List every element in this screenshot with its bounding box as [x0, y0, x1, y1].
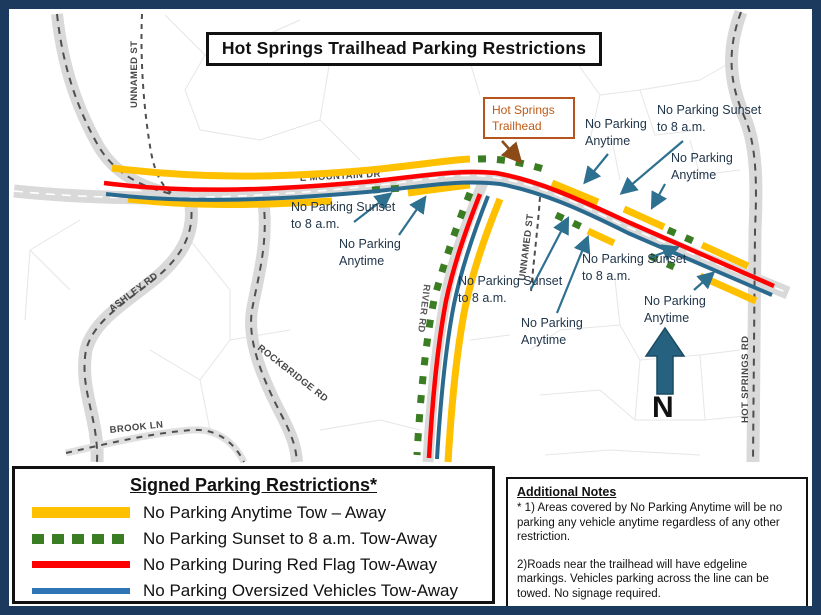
street-label-unnamed-st-left: UNNAMED ST — [129, 41, 140, 108]
legend-label: No Parking Anytime Tow – Away — [143, 503, 386, 523]
legend-swatch-blue — [32, 588, 130, 594]
street-label-hot-springs-rd: HOT SPRINGS RD — [740, 336, 751, 423]
legend-item-anytime: No Parking Anytime Tow – Away — [32, 501, 492, 524]
legend-item-red-flag: No Parking During Red Flag Tow-Away — [32, 553, 492, 576]
legend-item-sunset: No Parking Sunset to 8 a.m. Tow-Away — [32, 527, 492, 550]
annotation-sunset-4: No Parking Sunset to 8 a.m. — [582, 251, 697, 284]
notes-paragraph-2: 2)Roads near the trailhead will have edg… — [517, 558, 797, 602]
legend-swatch-red — [32, 561, 130, 568]
map-document: E MOUNTAIN DR UNNAMED ST UNNAMED ST ASHL… — [0, 0, 821, 615]
annotation-no-parking-anytime-1: No Parking Anytime — [585, 116, 667, 149]
annotation-arrow-3 — [653, 184, 665, 206]
notes-paragraph-1: * 1) Areas covered by No Parking Anytime… — [517, 501, 797, 545]
legend-label: No Parking During Red Flag Tow-Away — [143, 555, 437, 575]
annotation-sunset-3: No Parking Sunset to 8 a.m. — [458, 273, 570, 306]
legend-swatch-green-dashed — [32, 534, 130, 544]
notes-title: Additional Notes — [517, 485, 797, 499]
title-box: Hot Springs Trailhead Parking Restrictio… — [206, 32, 602, 66]
road-river-rd — [428, 180, 484, 462]
annotation-no-parking-anytime-5: No Parking Anytime — [644, 293, 726, 326]
north-label: N — [652, 391, 674, 425]
legend-label: No Parking Oversized Vehicles Tow-Away — [143, 581, 458, 601]
legend-label: No Parking Sunset to 8 a.m. Tow-Away — [143, 529, 437, 549]
annotation-arrow-1 — [586, 154, 608, 181]
annotation-no-parking-anytime-2: No Parking Anytime — [671, 150, 753, 183]
legend-title: Signed Parking Restrictions* — [15, 475, 492, 496]
road-rockbridge-rd — [251, 199, 297, 462]
legend-swatch-yellow — [32, 507, 130, 518]
annotation-sunset-1: No Parking Sunset to 8 a.m. — [657, 102, 769, 135]
trailhead-callout-label: Hot Springs Trailhead — [492, 103, 555, 133]
trailhead-callout: Hot Springs Trailhead — [483, 97, 575, 139]
north-arrow-icon — [646, 328, 684, 394]
annotation-no-parking-anytime-3: No Parking Anytime — [339, 236, 421, 269]
legend-box: Signed Parking Restrictions* No Parking … — [12, 466, 495, 604]
annotation-no-parking-anytime-4: No Parking Anytime — [521, 315, 603, 348]
legend-item-oversized: No Parking Oversized Vehicles Tow-Away — [32, 579, 492, 602]
page-title: Hot Springs Trailhead Parking Restrictio… — [222, 38, 586, 58]
street-label-ashley-rd: ASHLEY RD — [107, 271, 160, 315]
annotation-sunset-2: No Parking Sunset to 8 a.m. — [291, 199, 403, 232]
notes-box: Additional Notes * 1) Areas covered by N… — [506, 477, 808, 612]
